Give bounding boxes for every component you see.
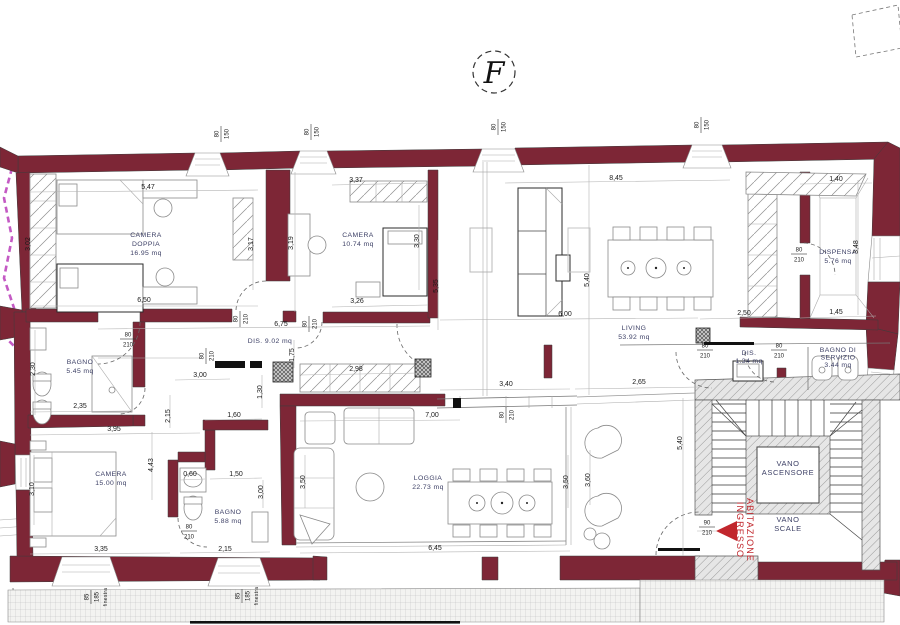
double-bed — [30, 441, 116, 547]
opening-width: 80 — [200, 352, 206, 359]
opening-width: 80 — [702, 344, 709, 350]
room-label-living: 53.92 mq — [618, 334, 650, 341]
opening-height: 210 — [794, 258, 805, 264]
room-label-bagno-2: BAGNO — [215, 509, 242, 516]
dimension-label: 2,50 — [737, 310, 751, 317]
entrance-label: INGRESSO — [735, 502, 745, 558]
room-label-camera-doppia: DOPPIA — [132, 241, 160, 248]
dimension-label: 6,50 — [137, 297, 151, 304]
dimension-label: 3,30 — [414, 234, 421, 248]
dimension-label: 2,98 — [349, 366, 363, 373]
dimension-label: 1,60 — [227, 412, 241, 419]
dimension-label: 1,75 — [289, 348, 296, 362]
terrace-paving — [640, 580, 884, 622]
dimension-label: 5,40 — [677, 436, 684, 450]
opening-width: 80 — [796, 248, 803, 254]
room-label-dis-servizio: 1.34 mq — [735, 358, 762, 365]
opening-height: 210 — [702, 531, 713, 537]
dimension-label: 3,50 — [300, 475, 307, 489]
side-table — [594, 533, 610, 549]
coffee-table — [470, 228, 492, 272]
opening-marker: 80210 — [303, 316, 319, 332]
nightstand — [356, 282, 380, 297]
opening-height: 150 — [225, 128, 231, 139]
floor-plan-page: CAMERADOPPIA16.95 mqCAMERA10.74 mqLIVING… — [0, 0, 900, 625]
opening-marker: 80210 — [500, 407, 516, 423]
opening-height: 210 — [210, 350, 216, 361]
room-label-bagno-1: BAGNO — [67, 359, 94, 366]
sectional-sofa — [518, 188, 570, 316]
opening-marker: 80210 — [200, 348, 216, 364]
room-label-loggia: LOGGIA — [414, 475, 443, 482]
dimension-label: 2,15 — [218, 546, 232, 553]
dimension-label: 5,35 — [433, 279, 440, 293]
entrance-threshold — [658, 548, 700, 551]
dimension-label: 3,00 — [258, 485, 265, 499]
lounge-chair — [585, 425, 622, 458]
dimension-label: 3,95 — [107, 426, 121, 433]
room-label-bagno-1: 5.45 mq — [66, 368, 93, 375]
entrance-arrow — [716, 521, 737, 541]
opening-width: 80 — [695, 121, 701, 128]
opening-width: 80 — [500, 411, 506, 418]
opening-width: 80 — [303, 320, 309, 327]
dimension-label: 2,65 — [632, 379, 646, 386]
room-label-bagno-servizio: SERVIZIO — [821, 355, 856, 362]
dimension-label: 6,45 — [428, 545, 442, 552]
single-bed — [57, 180, 143, 234]
room-label-camera-matrimoniale: 15.00 mq — [95, 480, 127, 487]
desk — [143, 287, 197, 304]
opening-height: 210 — [123, 343, 134, 349]
opening-marker: 80150 — [492, 119, 508, 135]
room-label-dis-servizio: DIS. — [742, 350, 757, 357]
room-label-vano-scale: SCALE — [774, 524, 802, 533]
paving-layer — [8, 580, 884, 624]
dimension-label: 3,26 — [350, 298, 364, 305]
dimension-label: 3,17 — [248, 237, 255, 251]
window-tag-word: finestra — [254, 587, 260, 606]
room-label-vano-ascensore: VANO — [776, 459, 799, 468]
opening-marker: 80210 — [181, 525, 197, 541]
window-width: 85 — [236, 592, 242, 599]
duct-shaft — [273, 362, 293, 382]
opening-width: 80 — [492, 123, 498, 130]
dimension-label: 2,35 — [73, 403, 87, 410]
window-height: 185 — [95, 591, 101, 602]
opening-width: 80 — [776, 344, 783, 350]
outdoor-dining-table — [448, 469, 552, 537]
stairwell — [658, 374, 900, 582]
opening-marker: 80210 — [771, 344, 787, 360]
room-label-camera-matrimoniale: CAMERA — [95, 471, 127, 478]
section-cut-line — [190, 621, 460, 624]
opening-height: 150 — [315, 126, 321, 137]
toilet — [184, 496, 202, 520]
room-label-vano-scale: VANO — [776, 515, 799, 524]
lounge-chair — [585, 493, 622, 526]
opening-height: 150 — [502, 121, 508, 132]
room-label-bagno-2: 5.88 mq — [214, 518, 241, 525]
opening-height: 210 — [510, 409, 516, 420]
opening-height: 150 — [705, 119, 711, 130]
radiator — [30, 328, 46, 350]
dimension-label: 3,19 — [288, 236, 295, 250]
floor-plan-drawing: CAMERADOPPIA16.95 mqCAMERA10.74 mqLIVING… — [0, 0, 900, 625]
opening-marker: 80150 — [215, 126, 231, 142]
dimension-label: 6,75 — [274, 321, 288, 328]
opening-height: 210 — [244, 313, 250, 324]
dimension-label: 1,40 — [829, 176, 843, 183]
room-label-dispensa: 5.76 mq — [824, 258, 851, 265]
opening-marker: 80210 — [791, 248, 807, 264]
chaise-sofa — [294, 448, 334, 544]
room-label-loggia: 22.73 mq — [412, 484, 444, 491]
armchair — [305, 412, 335, 444]
room-label-camera-doppia: 16.95 mq — [130, 250, 162, 257]
dimension-label: 3,50 — [563, 475, 570, 489]
duct-shaft — [696, 328, 710, 343]
dimension-label: 6,00 — [558, 311, 572, 318]
dimension-label: 2,15 — [165, 409, 172, 423]
room-label-living: LIVING — [622, 325, 647, 332]
hall-cabinet — [215, 361, 245, 368]
dimension-label: 1,30 — [257, 385, 264, 399]
dimension-label: 7,00 — [425, 412, 439, 419]
dimension-label: 1,50 — [229, 471, 243, 478]
opening-marker: 80210 — [697, 344, 713, 360]
window-tag-word: finestra — [103, 588, 109, 607]
room-label-bagno-servizio: 3.44 mq — [824, 362, 851, 369]
dimension-label: 3,37 — [349, 177, 363, 184]
room-label-camera: 10.74 mq — [342, 241, 374, 248]
opening-marker: 90210 — [699, 521, 715, 537]
opening-height: 210 — [700, 354, 711, 360]
dimension-label: 8,45 — [609, 175, 623, 182]
dimension-label: 3,10 — [29, 482, 36, 496]
opening-height: 210 — [313, 318, 319, 329]
single-bed — [57, 264, 143, 312]
window-width: 85 — [85, 593, 91, 600]
room-label-camera-doppia: CAMERA — [130, 232, 162, 239]
opening-width: 80 — [234, 315, 240, 322]
dimension-label: 3,48 — [853, 240, 860, 254]
room-label-bagno-servizio: BAGNO DI — [820, 347, 856, 354]
desk-chair — [156, 268, 174, 286]
hall-cabinet — [250, 361, 262, 368]
dining-table — [608, 227, 713, 310]
room-label-disimpegno-giorno: DIS. 9.02 mq — [248, 338, 292, 345]
dimension-label: 3,60 — [585, 473, 592, 487]
room-label-vano-ascensore: ASCENSORE — [762, 468, 815, 477]
desk-chair — [154, 199, 172, 217]
dimension-label: 5,40 — [584, 273, 591, 287]
dimension-label: 5,47 — [141, 184, 155, 191]
neighbor-roof-outline — [852, 5, 900, 57]
dimension-label: 3,40 — [499, 381, 513, 388]
opening-width: 80 — [305, 128, 311, 135]
opening-width: 90 — [704, 521, 711, 527]
wardrobe — [30, 174, 56, 308]
outdoor-sofa — [344, 408, 414, 444]
bath-cabinet — [252, 512, 268, 542]
dimension-label: 2,30 — [30, 362, 37, 376]
desk-chair — [308, 236, 326, 254]
opening-height: 210 — [184, 535, 195, 541]
opening-width: 80 — [215, 130, 221, 137]
opening-marker: 80150 — [305, 124, 321, 140]
window-height: 185 — [246, 590, 252, 601]
dimension-label: 3,00 — [193, 372, 207, 379]
room-label-camera: CAMERA — [342, 232, 374, 239]
dimension-label: 4,43 — [148, 458, 155, 472]
console-table — [568, 228, 590, 272]
room-label-dispensa: DISPENSA — [819, 249, 857, 256]
section-mark-letter: F — [483, 56, 506, 91]
entrance-label: ABITAZIONE — [745, 498, 755, 562]
round-table — [356, 473, 384, 501]
opening-width: 80 — [186, 525, 193, 531]
opening-marker: 80210 — [234, 311, 250, 327]
dimension-label: 0,60 — [183, 471, 197, 478]
opening-marker: 80150 — [695, 117, 711, 133]
dimension-label: 3,35 — [94, 546, 108, 553]
opening-height: 210 — [774, 354, 785, 360]
dimension-label: 3,02 — [25, 237, 32, 251]
opening-width: 80 — [125, 333, 132, 339]
dimension-label: 1,45 — [829, 309, 843, 316]
